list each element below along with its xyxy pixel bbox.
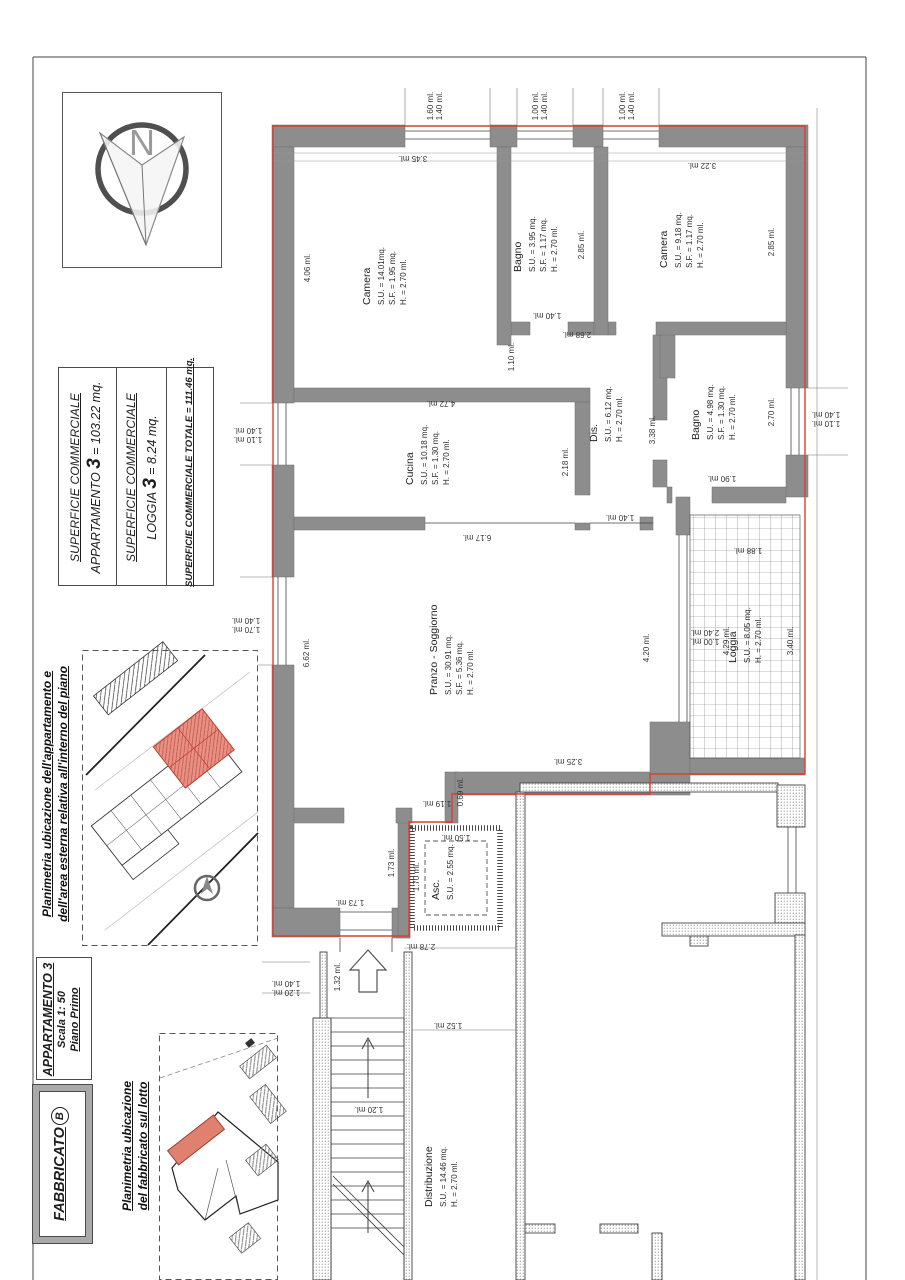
dim-45: 1.52 ml.: [434, 1021, 462, 1030]
dim-31: 4.29 ml.: [722, 627, 731, 655]
room-name-distribuzione: Distribuzione: [423, 1146, 435, 1207]
room-line: H. = 2.70 ml.: [466, 649, 475, 695]
room-name-cucina: Cucina: [404, 452, 416, 485]
inset-piano-map: [83, 642, 259, 946]
dim-1: 1.40 ml.: [435, 92, 444, 120]
room-line: S.U. = 3.95 mq.: [528, 216, 537, 272]
room-line: H. = 2.70 ml.: [728, 394, 737, 440]
room-line: H. = 2.70 ml.: [754, 617, 763, 663]
title-block-divider: [116, 368, 117, 585]
room-line: S.F. = 1.30 mq.: [717, 386, 726, 440]
dim-20: 1.40 ml.: [812, 410, 840, 419]
dim-38: 1.70 ml.: [412, 863, 421, 891]
caption-lotto: Planimetria ubicazione del fabbricato su…: [120, 1040, 151, 1252]
title-block-divider: [166, 368, 167, 585]
elevator: [412, 828, 500, 928]
north-compass-box: N: [62, 92, 222, 268]
dim-36: 1.19 ml.: [423, 799, 451, 808]
room-line: S.F. = 1.30 mq.: [431, 431, 440, 485]
superficie-totale: SUPERFICIE COMMERCIALE TOTALE = 111.46 m…: [184, 368, 195, 587]
legend-scale: Scala 1: 50: [56, 958, 68, 1081]
dim-43: 1.40 ml.: [272, 979, 300, 988]
room-line: S.U. = 9.18 mq.: [674, 212, 683, 268]
dim-10: 2.85 ml.: [767, 228, 776, 256]
room-line: S.U. = 14.46 mq.: [439, 1147, 448, 1207]
dim-11: 1.40 ml.: [533, 311, 561, 320]
dim-12: 2.68 ml.: [563, 330, 591, 339]
dim-32: 3.40 ml.: [786, 627, 795, 655]
title-block: SUPERFICIE COMMERCIALE APPARTAMENTO 3 = …: [58, 367, 214, 586]
dim-44: 1.20 ml.: [272, 988, 300, 997]
room-line: H. = 2.70 ml.: [399, 259, 408, 305]
dim-23: 1.10 ml.: [234, 435, 262, 444]
dim-22: 1.40 ml.: [234, 426, 262, 435]
dim-26: 6.62 ml.: [302, 639, 311, 667]
room-name-bagno-1: Bagno: [512, 241, 524, 272]
room-name-camera-1: Camera: [361, 267, 373, 305]
room-name-bagno-2: Bagno: [690, 409, 702, 440]
dim-17: 3.38 ml.: [648, 416, 657, 444]
staircase: [331, 1018, 404, 1280]
superficie-loggia-value: LOGGIA 3 = 8.24 mq.: [140, 368, 162, 587]
room-line: H. = 2.70 ml.: [696, 222, 705, 268]
dim-27: 1.40 ml.: [606, 513, 634, 522]
superficie-appartamento-value: APPARTAMENTO 3 = 103.22 mq.: [84, 368, 106, 587]
dim-13: 1.10 ml.: [507, 343, 516, 371]
dim-7: 4.06 ml.: [303, 254, 312, 282]
dim-0: 1.60 ml.: [426, 92, 435, 120]
dim-21: 1.10 ml.: [812, 419, 840, 428]
room-line: H. = 2.70 ml.: [450, 1161, 459, 1207]
caption-piano: Planimetria ubicazione dell'appartamento…: [40, 648, 71, 940]
dim-39: 1.50 ml.: [442, 833, 470, 842]
dim-35: 0.69 ml.: [456, 778, 465, 806]
room-line: H. = 2.70 ml.: [550, 226, 559, 272]
dim-41: 1.73 ml.: [336, 898, 364, 907]
room-name-pranzo-soggiorno: Pranzo - Soggiorno: [428, 604, 440, 695]
room-name-dis: Dis.: [588, 424, 600, 442]
dim-34: 3.25 ml.: [554, 757, 582, 766]
dim-29: 2.40 ml.: [691, 628, 719, 637]
dim-9: 2.85 ml.: [577, 231, 586, 259]
fabbricato-label: FABBRICATOB: [51, 1091, 69, 1237]
room-line: S.U. = 8.05 mq.: [743, 607, 752, 663]
room-line: S.U. = 30.91 mq.: [444, 635, 453, 695]
superficie-appartamento-label: SUPERFICIE COMMERCIALE: [68, 368, 82, 587]
dim-25: 1.70 ml.: [232, 625, 260, 634]
dim-28: 4.20 ml.: [642, 634, 651, 662]
dim-46: 1.20 ml.: [355, 1105, 383, 1114]
dim-37: 1.73 ml.: [387, 849, 396, 877]
inset-lotto-map: [160, 1034, 287, 1280]
room-line: S.F. = 1.17 mq.: [539, 218, 548, 272]
dim-15: 2.18 ml.: [561, 448, 570, 476]
dim-40: 2.78 ml.: [407, 942, 435, 951]
entrance-arrow-icon: [350, 950, 386, 992]
room-line: S.F. = 5.36 mq.: [455, 641, 464, 695]
dim-5: 1.40 ml.: [627, 92, 636, 120]
dim-8: 3.22 ml.: [688, 161, 716, 170]
dim-3: 1.40 ml.: [540, 92, 549, 120]
room-line: S.U. = 10.18 mq.: [420, 425, 429, 485]
superficie-loggia-label: SUPERFICIE COMMERCIALE: [124, 368, 138, 587]
room-line: S.F. = 1.95 mq.: [388, 251, 397, 305]
room-name-camera-2: Camera: [658, 230, 670, 268]
room-name-ascensore: Asc.: [430, 880, 442, 900]
dim-14: 4.72 ml.: [427, 399, 455, 408]
room-line: H. = 2.70 ml.: [442, 439, 451, 485]
dim-18: 1.90 ml.: [708, 474, 736, 483]
dim-42: 1.32 ml.: [333, 963, 342, 991]
compass-letter: N: [129, 122, 155, 163]
legend-floor: Piano Primo: [69, 958, 81, 1081]
legend-apartment: APPARTAMENTO 3: [41, 958, 55, 1081]
dim-6: 3.45 ml.: [399, 154, 427, 163]
dim-24: 1.40 ml.: [232, 616, 260, 625]
room-line: S.U. = 4.98 mq.: [706, 384, 715, 440]
dim-2: 1.00 ml.: [531, 92, 540, 120]
building-letter-badge: B: [51, 1107, 69, 1125]
room-line: S.F. = 1.17 mq.: [685, 214, 694, 268]
room-line: S.U. = 6.12 mq.: [604, 386, 613, 442]
dim-19: 2.70 ml.: [767, 398, 776, 426]
legend-box: APPARTAMENTO 3 Scala 1: 50 Piano Primo: [36, 957, 92, 1080]
room-line: S.U. = 14.01mq.: [377, 247, 386, 305]
dim-4: 1.00 ml.: [618, 92, 627, 120]
north-compass-icon: N: [63, 93, 221, 267]
dim-33: 1.88 ml.: [734, 546, 762, 555]
room-line: S.U. = 2.55 mq.: [446, 844, 455, 900]
drawing-sheet: Camera S.U. = 14.01mq. S.F. = 1.95 mq. H…: [0, 0, 905, 1280]
dim-30: 1.00 ml.: [691, 637, 719, 646]
dim-16: 6.17 ml.: [463, 533, 491, 542]
fabbricato-frame: FABBRICATOB: [33, 1085, 92, 1243]
room-line: H. = 2.70 ml.: [615, 396, 624, 442]
